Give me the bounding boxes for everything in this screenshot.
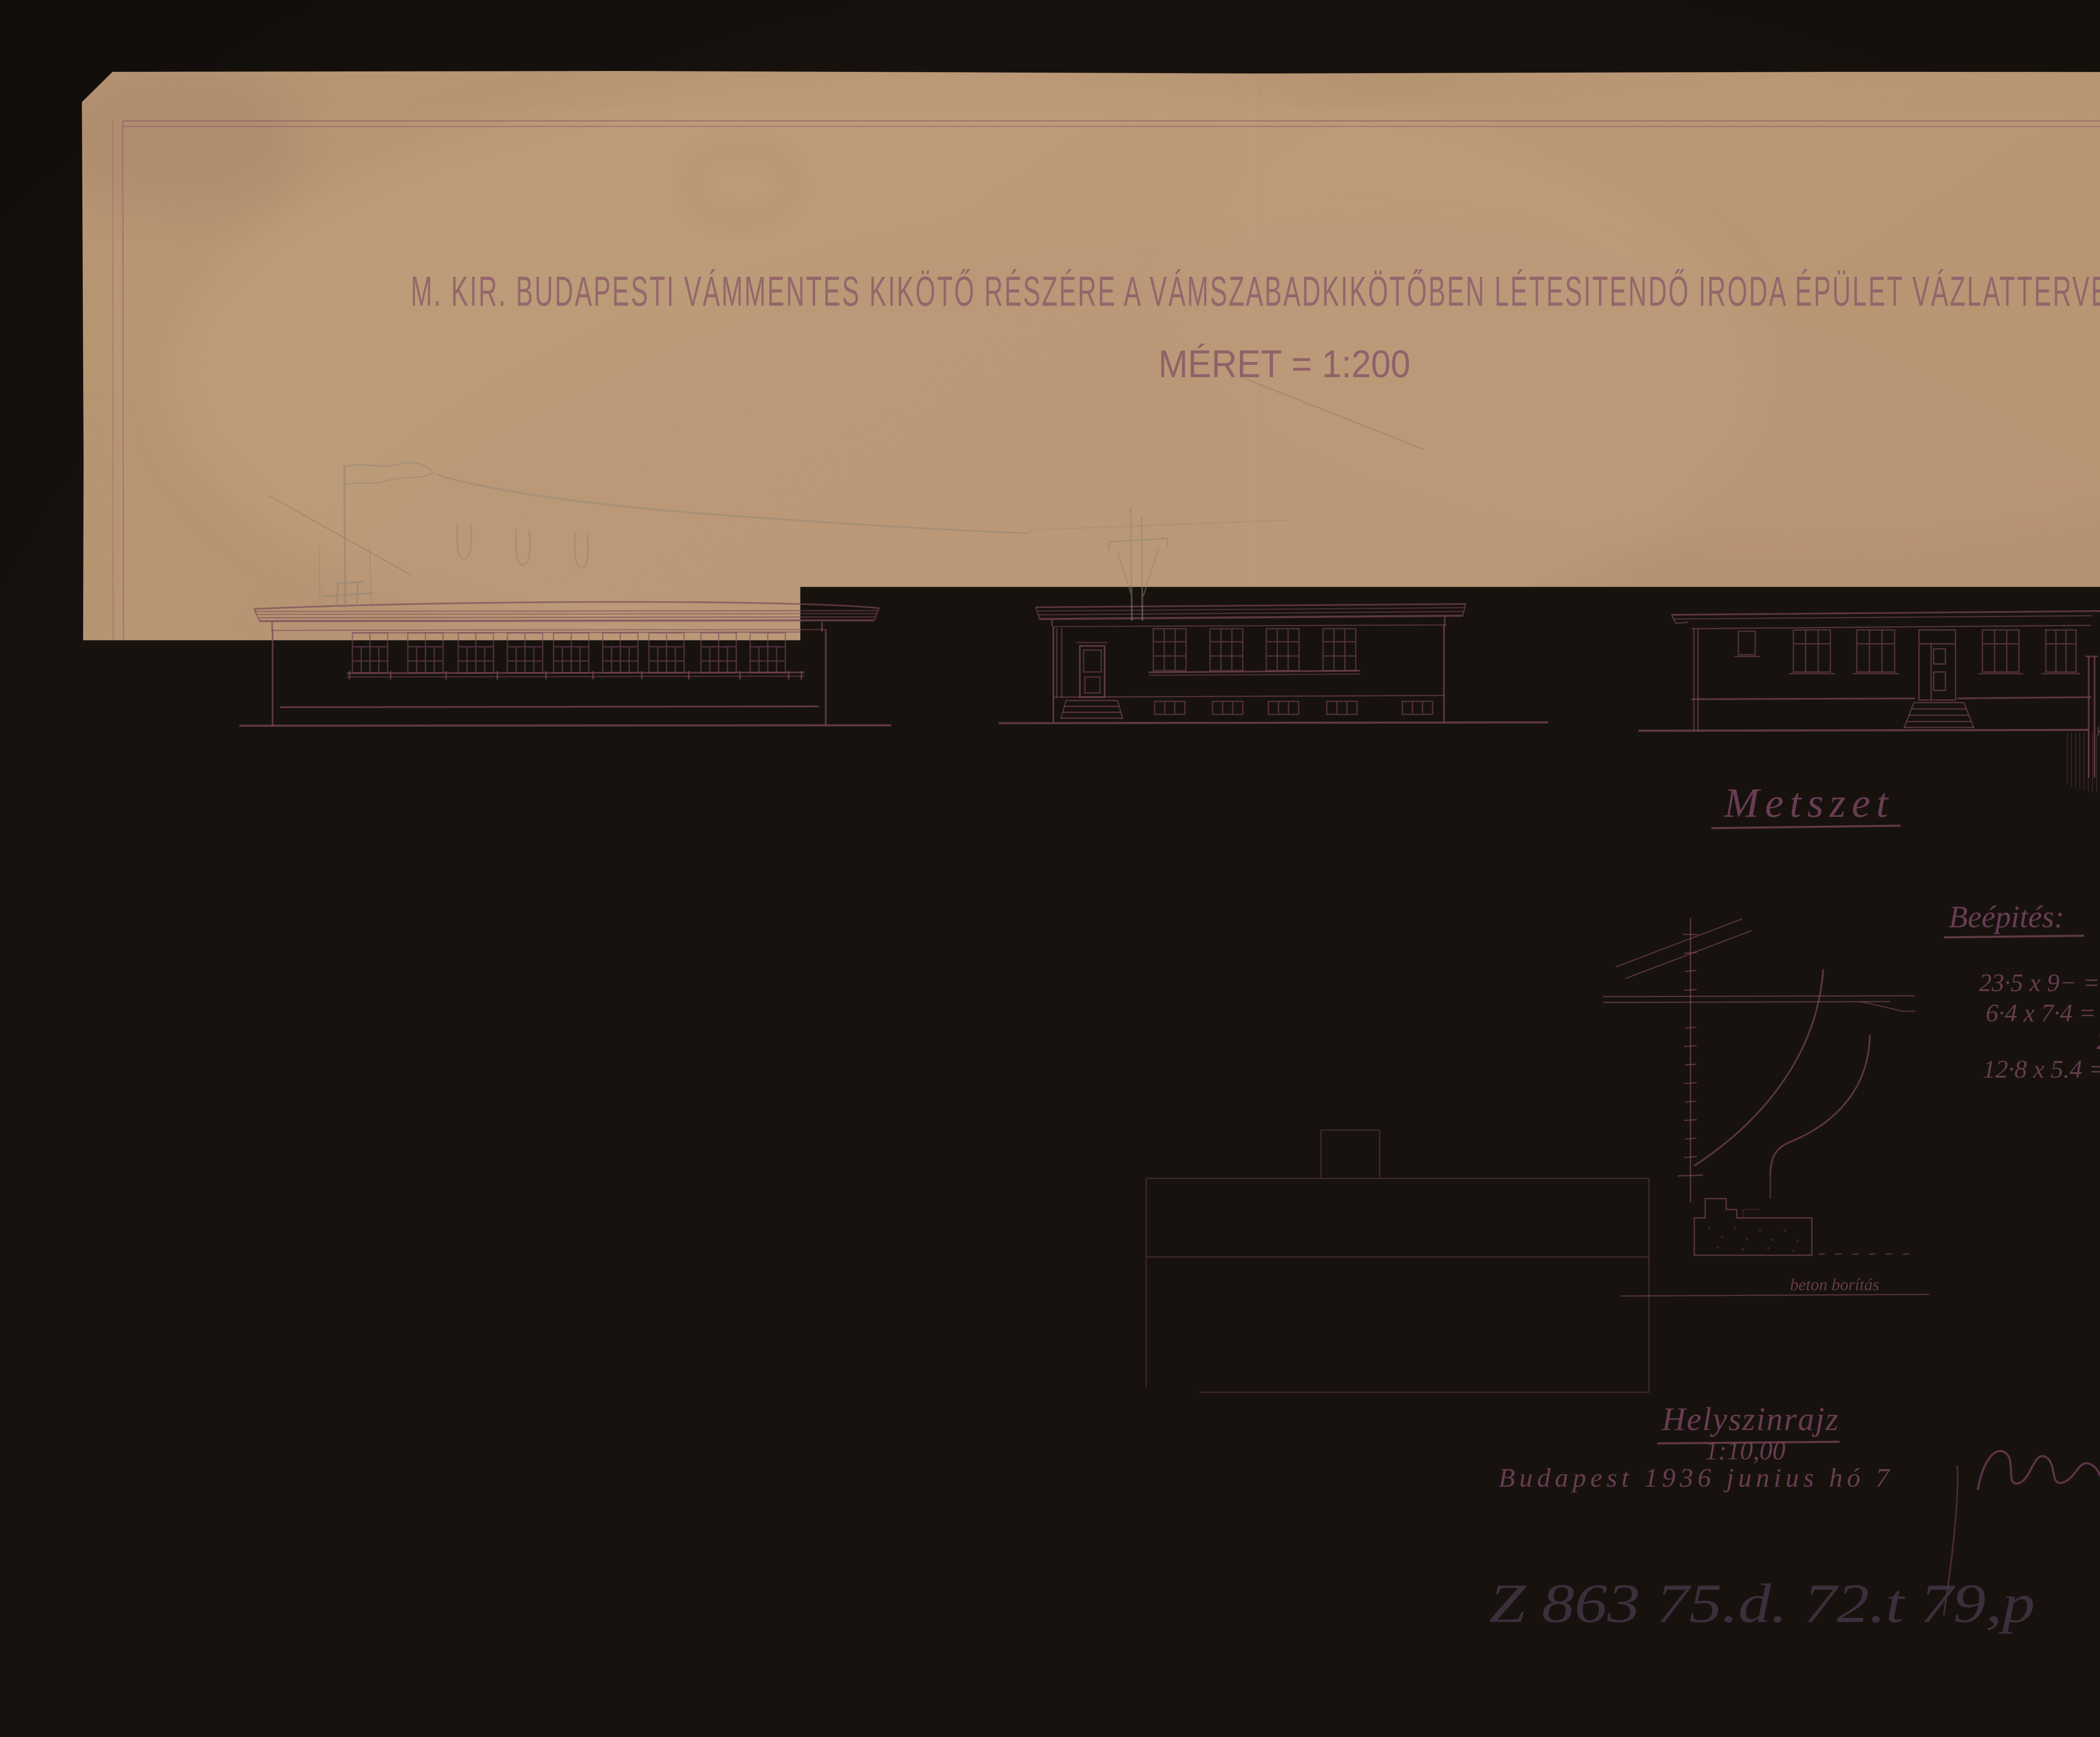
svg-text:10 m²: 10 m² bbox=[330, 1210, 368, 1229]
svg-text:beton borítás: beton borítás bbox=[1790, 1275, 1879, 1294]
svg-text:Raktár: Raktár bbox=[1051, 1098, 1100, 1117]
svg-text:30 m²: 30 m² bbox=[333, 1330, 374, 1350]
svg-text:W.C: W.C bbox=[799, 1232, 823, 1247]
svg-text:23·50: 23·50 bbox=[568, 1411, 613, 1433]
svg-text:Metszet: Metszet bbox=[1723, 779, 1892, 826]
svg-text:Pince: Pince bbox=[1039, 1435, 1169, 1481]
svg-text:6·4 x 7·4 =: 6·4 x 7·4 = bbox=[1986, 999, 2096, 1027]
svg-text:Beépités:: Beépités: bbox=[1949, 900, 2064, 934]
svg-text:7·10: 7·10 bbox=[369, 959, 403, 981]
svg-text:10 m²: 10 m² bbox=[1062, 1118, 1097, 1135]
svg-text:Őrszoba: Őrszoba bbox=[315, 1121, 383, 1144]
svg-text:11 m²: 11 m² bbox=[372, 1055, 407, 1072]
svg-text:Motozó: Motozó bbox=[359, 1031, 412, 1051]
svg-text:Keleti homlokzat: Keleti homlokzat bbox=[1059, 769, 1317, 814]
svg-text:20 m²: 20 m² bbox=[486, 1233, 527, 1252]
svg-text:W.C: W.C bbox=[418, 1099, 444, 1115]
svg-text:MÉRET = 1:200: MÉRET = 1:200 bbox=[1158, 343, 1410, 386]
svg-text:12·8 x 5.4 = 69− x 1·6 =: 12·8 x 5.4 = 69− x 1·6 = bbox=[1983, 1055, 2100, 1083]
svg-text:Vámiroda: Vámiroda bbox=[312, 1306, 392, 1328]
svg-text:Vámiroda: Vámiroda bbox=[443, 1306, 523, 1328]
svg-text:Iroda: Iroda bbox=[787, 1307, 827, 1328]
svg-text:14 m²: 14 m² bbox=[329, 1145, 370, 1164]
svg-text:Iroda: Iroda bbox=[686, 1307, 727, 1328]
svg-text:Parancsnok: Parancsnok bbox=[300, 1189, 394, 1210]
svg-text:1:10,00: 1:10,00 bbox=[1705, 1437, 1785, 1465]
svg-text:14 m²: 14 m² bbox=[793, 1330, 830, 1348]
svg-text:M. KIR. BUDAPESTI VÁMMENTES KI: M. KIR. BUDAPESTI VÁMMENTES KIKÖTŐ RÉSZÉ… bbox=[411, 268, 2100, 315]
svg-text:Északi homlokzat: Északi homlokzat bbox=[288, 767, 552, 812]
svg-text:Pénztár: Pénztár bbox=[572, 1307, 631, 1328]
svg-text:Épitésiköltség:: Épitésiköltség: bbox=[1956, 1162, 2100, 1196]
svg-text:Raktár: Raktár bbox=[1053, 1348, 1102, 1367]
svg-text:Előcsarnok: Előcsarnok bbox=[630, 1208, 748, 1230]
svg-text:25 m²: 25 m² bbox=[675, 1231, 716, 1250]
svg-text:− 27 m²: − 27 m² bbox=[458, 1330, 515, 1350]
svg-text:258.8 x 4.4 = 1138 −: 258.8 x 4.4 = 1138 − bbox=[2097, 1027, 2100, 1055]
svg-text:Pénzügyőri sz.: Pénzügyőri sz. bbox=[443, 1210, 556, 1231]
svg-text:1248 x 24− =: 1248 x 24− = bbox=[2002, 1209, 2100, 1237]
svg-text:23·5 x 9− = 211·5: 23·5 x 9− = 211·5 bbox=[1979, 969, 2100, 997]
svg-text:Levéltár: Levéltár bbox=[1341, 1579, 1430, 1604]
svg-text:11·75: 11·75 bbox=[1239, 1655, 1266, 1669]
svg-text:Igazgatóság: Igazgatóság bbox=[622, 1344, 786, 1366]
svg-text:Magyar Országos: Magyar Országos bbox=[1305, 1545, 1467, 1573]
svg-text:10 m²: 10 m² bbox=[1064, 1368, 1099, 1385]
svg-text:Helyszinrajz: Helyszinrajz bbox=[1662, 1401, 1838, 1437]
svg-text:12 m²: 12 m² bbox=[587, 1330, 623, 1348]
svg-text:11·75: 11·75 bbox=[1240, 1669, 1267, 1683]
svg-text:Z 863 75.d. 72.t 79,p: Z 863 75.d. 72.t 79,p bbox=[1489, 1572, 2035, 1634]
